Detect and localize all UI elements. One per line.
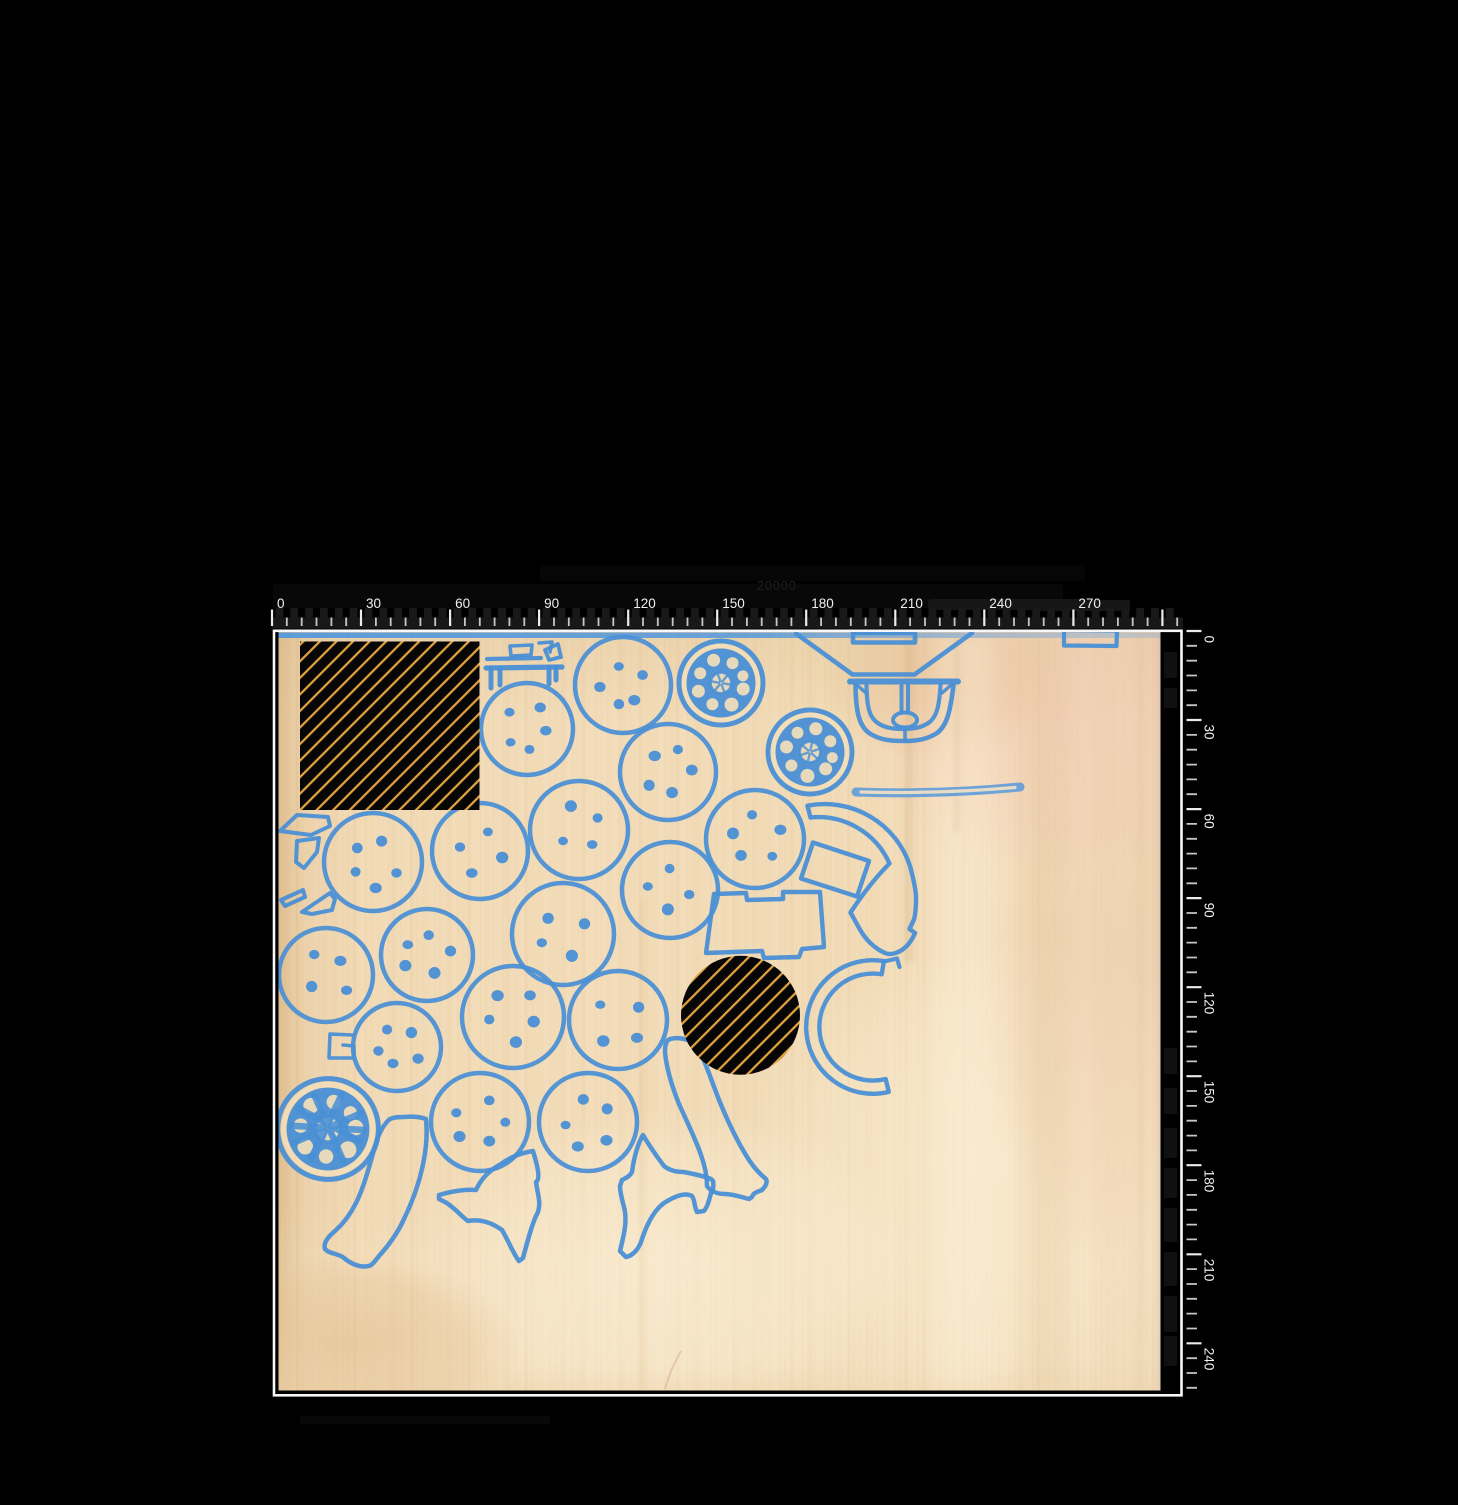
svg-text:20000: 20000 <box>757 579 797 593</box>
svg-text:210: 210 <box>900 596 923 611</box>
svg-text:120: 120 <box>633 596 656 611</box>
svg-text:30: 30 <box>1202 725 1217 740</box>
svg-text:0: 0 <box>277 596 285 611</box>
svg-text:60: 60 <box>455 596 470 611</box>
svg-text:0: 0 <box>1202 636 1217 644</box>
svg-text:90: 90 <box>544 596 559 611</box>
svg-text:30: 30 <box>366 596 381 611</box>
svg-text:180: 180 <box>811 596 834 611</box>
svg-text:180: 180 <box>1202 1170 1217 1193</box>
svg-text:60: 60 <box>1202 814 1217 829</box>
svg-text:120: 120 <box>1202 992 1217 1015</box>
svg-text:210: 210 <box>1202 1259 1217 1282</box>
svg-text:150: 150 <box>1202 1081 1217 1104</box>
svg-text:240: 240 <box>1202 1348 1217 1371</box>
svg-text:90: 90 <box>1202 903 1217 918</box>
svg-text:270: 270 <box>1078 596 1101 611</box>
svg-text:240: 240 <box>989 596 1012 611</box>
svg-text:150: 150 <box>722 596 745 611</box>
